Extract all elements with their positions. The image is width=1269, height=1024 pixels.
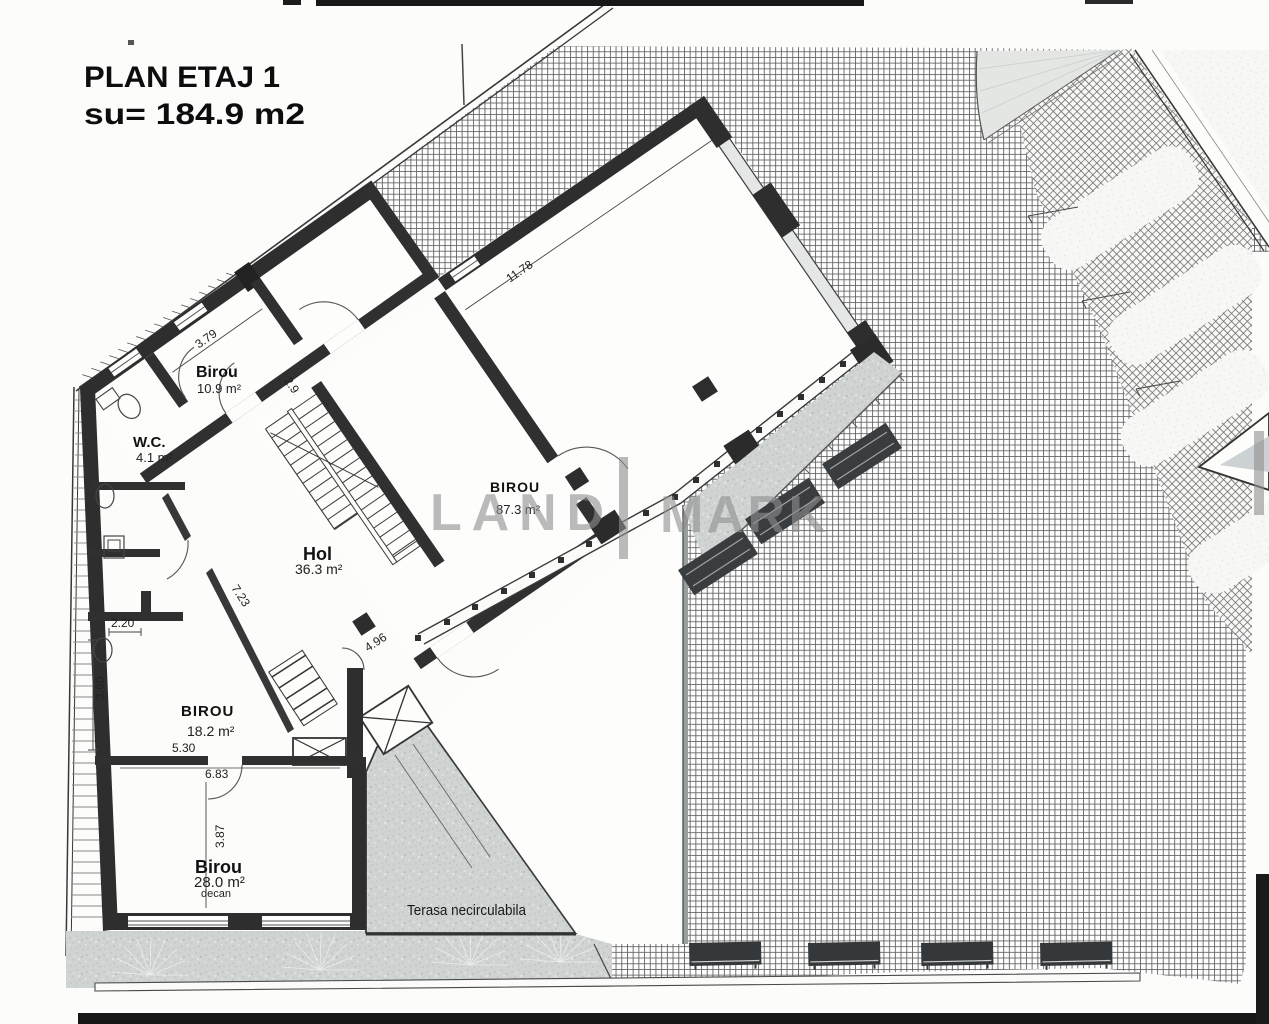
- svg-text:10.9 m²: 10.9 m²: [197, 381, 242, 396]
- svg-text:W.C.: W.C.: [133, 434, 166, 451]
- svg-text:5.30: 5.30: [172, 741, 196, 755]
- svg-text:Birou: Birou: [196, 364, 238, 381]
- svg-text:3.60: 3.60: [93, 676, 107, 700]
- svg-text:Terasa necirculabila: Terasa necirculabila: [407, 902, 527, 919]
- svg-text:PLAN ETAJ 1: PLAN ETAJ 1: [84, 61, 280, 94]
- svg-text:36.3 m²: 36.3 m²: [295, 561, 343, 577]
- svg-text:6.83: 6.83: [205, 767, 229, 781]
- svg-text:3.87: 3.87: [213, 824, 227, 848]
- svg-text:MARK: MARK: [660, 486, 832, 544]
- svg-text:LAND: LAND: [430, 484, 610, 542]
- svg-text:su= 184.9 m2: su= 184.9 m2: [84, 98, 305, 131]
- svg-text:decan: decan: [201, 888, 231, 900]
- svg-text:4.1 m²: 4.1 m²: [136, 450, 174, 465]
- svg-text:BIROU: BIROU: [181, 703, 234, 720]
- svg-text:18.2 m²: 18.2 m²: [187, 723, 235, 739]
- svg-text:2.20: 2.20: [111, 616, 135, 630]
